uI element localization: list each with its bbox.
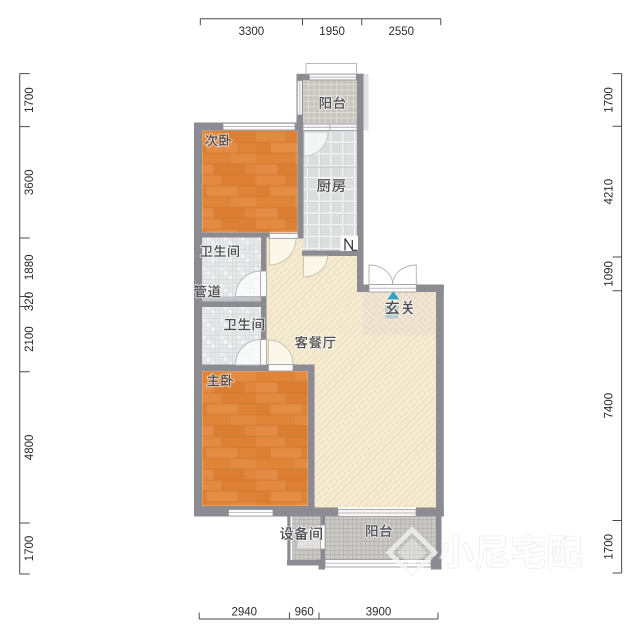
svg-text:3300: 3300 [239, 26, 265, 38]
svg-text:2100: 2100 [24, 326, 36, 352]
svg-text:3600: 3600 [24, 170, 36, 196]
svg-text:1700: 1700 [24, 536, 36, 562]
svg-text:3900: 3900 [366, 607, 392, 619]
svg-text:1700: 1700 [24, 87, 36, 113]
svg-text:4800: 4800 [24, 435, 36, 461]
svg-text:7400: 7400 [604, 393, 616, 419]
svg-text:1700: 1700 [604, 534, 616, 560]
svg-text:2550: 2550 [389, 26, 415, 38]
svg-text:1950: 1950 [319, 26, 345, 38]
svg-text:4210: 4210 [604, 179, 616, 205]
svg-text:2940: 2940 [232, 607, 258, 619]
svg-text:320: 320 [24, 292, 36, 311]
svg-text:1880: 1880 [24, 255, 36, 281]
svg-text:960: 960 [295, 607, 314, 619]
svg-text:1700: 1700 [604, 87, 616, 113]
svg-text:1090: 1090 [604, 261, 616, 287]
